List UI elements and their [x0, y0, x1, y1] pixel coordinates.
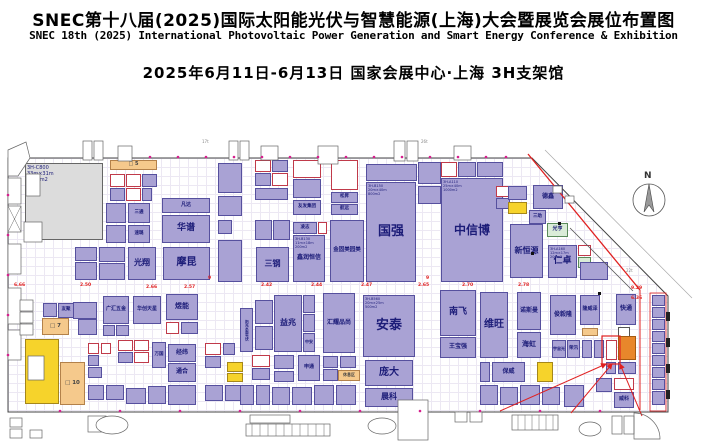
booth — [652, 319, 665, 330]
booth — [225, 385, 241, 401]
booth — [255, 188, 288, 200]
booth — [25, 339, 59, 404]
booth-华创天星: 华创天星 — [133, 296, 161, 324]
booth-name-label: 经纬 — [176, 350, 188, 356]
booth — [480, 385, 498, 405]
booth-name-label: 广汇五金 — [106, 307, 126, 312]
booth-name-label: 煜能 — [175, 303, 189, 310]
booth — [580, 262, 608, 280]
booth-name-label: 益兆 — [280, 319, 296, 327]
booth — [274, 371, 294, 382]
booth-name-label: □ 7 — [50, 324, 61, 330]
booth-华谱: 华谱 — [162, 215, 210, 243]
booth — [252, 355, 270, 367]
booth — [331, 160, 358, 190]
booth-三通: 三通 — [128, 203, 150, 223]
booth-area-label: 3H-A160 12m×17m 200m2 — [550, 247, 569, 260]
booth — [99, 263, 125, 280]
booth — [293, 179, 321, 198]
booth-name-label: 快通 — [620, 306, 632, 312]
booth-晨科: 晨科 — [365, 388, 413, 407]
booth-name-label: 国强 — [378, 225, 404, 239]
booth — [652, 343, 665, 354]
booth-阳光水面光伏: 阳光水面光伏 — [240, 308, 253, 352]
booth — [582, 328, 598, 336]
booth — [205, 385, 223, 401]
booth-area-label: 3H-C800 33m×31m 1023m2 — [27, 165, 54, 183]
booth — [43, 303, 57, 317]
booth — [142, 188, 152, 201]
booth-name-label: 速璐 — [135, 232, 144, 237]
booth — [582, 340, 592, 358]
booth-name-label: 中安 — [305, 340, 313, 344]
booth — [255, 160, 271, 172]
booth — [477, 162, 503, 177]
booth-name-label: 中信博 — [454, 224, 490, 237]
booth-name-label: 航远 — [340, 207, 349, 212]
booth-□ 10: □ 10 — [60, 362, 85, 405]
booth — [272, 160, 288, 172]
dimension-label: 6.66 — [14, 283, 25, 288]
booth-□ 7: □ 7 — [42, 318, 69, 335]
booth-国强: 3H-B150 20m×40m 800m2国强 — [366, 182, 416, 282]
booth-name-label: 汇耀品尚 — [327, 320, 351, 326]
booth-凡达: 凡达 — [162, 198, 210, 213]
dimension-label: 2.44 — [311, 283, 322, 288]
booth-area-label: 3H-B130 11m×18m 200m2 — [295, 237, 314, 250]
booth-area-label: 3H-B560 20m×25m 500m2 — [365, 297, 384, 310]
booth — [618, 362, 636, 374]
booth-维旺: 维旺 — [480, 292, 508, 358]
booth-仁卓: 3H-A160 12m×17m 200m2仁卓 — [548, 245, 577, 278]
booth-万国: 万国 — [152, 342, 166, 368]
booth-area-label: 3H-A110 25m×40m 1000m2 — [443, 180, 462, 193]
booth-name-label: 三钢 — [265, 260, 281, 268]
booth-中信博: 3H-A110 25m×40m 1000m2中信博 — [441, 178, 503, 282]
booth — [256, 385, 270, 405]
booth-王宝强: 王宝强 — [440, 337, 476, 358]
booth — [110, 174, 125, 187]
booth-name-label: 鑫润恒信 — [297, 255, 321, 261]
booth-鑫润恒信: 3H-B130 11m×18m 200m2鑫润恒信 — [293, 235, 325, 282]
booth-name-label: 南飞 — [449, 308, 467, 317]
booth — [73, 302, 97, 319]
booth — [537, 362, 553, 382]
booth-name-label: 光翔 — [134, 259, 150, 267]
booth — [101, 343, 111, 354]
booth-三助: 三助 — [529, 210, 546, 224]
booth-友聚: 友聚 — [58, 303, 74, 318]
booth — [255, 326, 273, 350]
booth-中安: 中安 — [303, 333, 315, 352]
booth — [227, 362, 243, 372]
booth-name-label: 凡达 — [181, 203, 191, 208]
booth — [578, 245, 591, 256]
booth — [274, 355, 294, 369]
booth-诺斯曼: 诺斯曼 — [517, 292, 541, 330]
booth — [606, 362, 616, 374]
booth-煜能: 煜能 — [166, 294, 198, 320]
booth-name-label: 申通 — [304, 365, 314, 370]
booth-经纬: 经纬 — [168, 344, 196, 362]
booth-休息区: 休息区 — [338, 370, 360, 381]
booth — [303, 314, 315, 332]
booth-name-label: 三通 — [135, 211, 144, 216]
booth-荣汛: 荣汛 — [567, 340, 580, 358]
booth-name-label: 安泰 — [376, 319, 402, 333]
booth-申通: 申通 — [298, 355, 320, 381]
booth-name-label: 友聚 — [62, 308, 71, 313]
booth — [596, 378, 612, 392]
booth-name-label: 凌志 — [301, 226, 310, 231]
booth-德鑫: 德鑫 — [533, 185, 563, 209]
booth-摩昆: 摩昆 — [163, 247, 210, 280]
booth-name-label: 德鑫 — [542, 194, 554, 200]
booth — [542, 387, 560, 405]
booth-通合: 通合 — [168, 363, 196, 382]
booth — [218, 240, 242, 282]
dimension-label: 2.78 — [518, 283, 529, 288]
dimension-label: 2.47 — [361, 283, 372, 288]
booth-name-label: 阳光水面光伏 — [245, 320, 249, 341]
booth — [323, 356, 338, 368]
booth — [520, 385, 540, 405]
booth — [336, 385, 356, 405]
booth — [652, 307, 665, 318]
booth-name-label: 宇宙光 — [553, 347, 565, 351]
booth — [255, 300, 273, 324]
dimension-label: 9.29 — [631, 286, 642, 291]
dimension-label: 6.36 — [631, 296, 642, 301]
booth — [134, 352, 149, 363]
booth-name-label: 庞大 — [379, 368, 399, 379]
booth-name-label: 俊毅隆 — [554, 312, 572, 318]
booth-金固美园美: 金固美园美 — [330, 220, 364, 282]
booth-宇宙光: 宇宙光 — [552, 340, 566, 358]
booth-新恒源: 新恒源 — [510, 224, 543, 278]
booth — [652, 355, 665, 366]
booth — [273, 220, 290, 240]
booth-松昇: 松昇 — [331, 192, 358, 203]
booth-name-label: 新恒源 — [515, 247, 539, 255]
booth — [614, 378, 634, 390]
booth — [508, 202, 527, 214]
booth-name-label: 诺斯曼 — [520, 308, 538, 314]
booth — [252, 368, 270, 380]
booth-南飞: 南飞 — [440, 290, 476, 336]
booth-□ 5: □ 5 — [110, 160, 157, 170]
booth — [218, 220, 232, 234]
booth — [292, 387, 312, 405]
booth — [652, 331, 665, 342]
booth — [166, 322, 179, 334]
dimension-label: 2.65 — [418, 283, 429, 288]
booth — [205, 343, 221, 355]
booth-name-label: 晨科 — [381, 393, 397, 401]
booth-庞大: 庞大 — [365, 360, 413, 386]
booth — [340, 356, 356, 368]
booth — [323, 369, 338, 381]
booth-name-label: □ 5 — [129, 162, 139, 167]
booth: 3H-C800 33m×31m 1023m2 — [25, 163, 103, 240]
booth-俊毅隆: 俊毅隆 — [550, 295, 576, 335]
booth — [126, 388, 146, 404]
booth — [272, 173, 288, 186]
booth — [75, 262, 97, 280]
booth-name-label: 通合 — [176, 369, 188, 375]
dimension-label: 26t — [421, 139, 428, 144]
booth — [218, 196, 242, 216]
booth — [293, 160, 321, 178]
booth-广汇五金: 广汇五金 — [103, 296, 129, 324]
booth — [118, 340, 133, 351]
booth-name-label: 维旺 — [484, 320, 504, 331]
booth — [418, 162, 441, 184]
booth — [314, 385, 334, 405]
dimension-label: 2.57 — [184, 285, 195, 290]
booth-name-label: 保威 — [502, 369, 514, 375]
booth — [116, 325, 129, 336]
booth — [106, 203, 126, 223]
booth — [126, 174, 141, 187]
booth-name-label: 休息区 — [343, 373, 355, 377]
booth — [272, 387, 290, 405]
booth — [110, 188, 125, 201]
booth — [500, 387, 518, 405]
booth — [181, 322, 198, 334]
booth — [240, 385, 254, 405]
booth — [480, 362, 490, 382]
booth-海虹: 海虹 — [517, 332, 541, 358]
dimension-label: 2.66 — [146, 285, 157, 290]
booth-光翔: 光翔 — [128, 247, 156, 280]
booth — [88, 355, 99, 366]
booth — [458, 162, 476, 177]
booth — [303, 295, 315, 313]
booth — [606, 340, 617, 360]
booth — [88, 385, 104, 400]
booth-name-label: 隆威泽 — [582, 307, 597, 312]
booth-name-label: 摩昆 — [177, 258, 197, 269]
booth-三钢: 三钢 — [256, 247, 289, 282]
booth-name-label: 松昇 — [340, 195, 349, 200]
dimension-label: 2.42 — [261, 283, 272, 288]
booth — [223, 343, 235, 355]
booth-速璐: 速璐 — [128, 225, 150, 243]
booth — [255, 173, 271, 186]
booth — [652, 295, 665, 306]
booth — [594, 340, 604, 358]
dimension-label: 2.50 — [80, 283, 91, 288]
booth-益兆: 益兆 — [274, 295, 302, 352]
dimension-label: 9 — [208, 276, 211, 281]
booth-name-label: 威科 — [619, 397, 629, 402]
dimension-label: 17t — [202, 139, 209, 144]
booth-name-label: 华谱 — [177, 224, 195, 233]
booth — [134, 340, 149, 351]
booth — [366, 164, 417, 181]
booth-name-label: 友发集团 — [298, 205, 316, 210]
booth-name-label: 三助 — [533, 215, 542, 220]
dimension-label: 2.70 — [462, 283, 473, 288]
booth — [441, 162, 457, 177]
booth-name-label: 华创天星 — [137, 307, 157, 312]
booth — [118, 352, 133, 363]
booth — [618, 336, 636, 360]
booth-安泰: 3H-B560 20m×25m 500m2安泰 — [363, 295, 415, 357]
booth — [652, 379, 665, 390]
booth — [75, 247, 97, 261]
booth-name-label: 光亨 — [552, 227, 562, 232]
booth — [106, 385, 124, 400]
booth — [227, 373, 243, 382]
dimension-label: 22t — [626, 268, 633, 273]
booth — [88, 367, 102, 378]
booth — [168, 385, 196, 405]
dimension-label: 9 — [426, 276, 429, 281]
booth — [205, 356, 221, 368]
booth-光亨: 光亨 — [547, 223, 568, 237]
booth — [318, 222, 327, 234]
booth — [103, 325, 115, 336]
booth — [652, 367, 665, 378]
booth-威科: 威科 — [614, 392, 634, 408]
booth — [564, 385, 584, 407]
booth-航远: 航远 — [331, 204, 358, 215]
booth-汇耀品尚: 汇耀品尚 — [323, 293, 355, 353]
booth — [652, 391, 665, 405]
booth-name-label: 王宝强 — [449, 344, 467, 350]
booth — [418, 186, 441, 204]
booth — [218, 163, 242, 193]
booth — [126, 188, 141, 201]
booth — [142, 174, 157, 187]
booth — [255, 220, 272, 240]
booth-name-label: □ 10 — [65, 381, 80, 387]
booth-name-label: 海虹 — [522, 341, 536, 348]
booth — [88, 343, 99, 354]
booth — [508, 186, 527, 200]
booth — [78, 319, 97, 335]
booth-name-label: 万国 — [155, 353, 164, 358]
booth-隆威泽: 隆威泽 — [580, 295, 600, 325]
booth — [106, 225, 126, 243]
booth-area-label: 3H-B150 20m×40m 800m2 — [368, 184, 387, 197]
booth — [99, 247, 125, 262]
booth-name-label: 荣汛 — [569, 347, 578, 352]
booth-保威: 保威 — [492, 362, 525, 382]
booth-友发集团: 友发集团 — [293, 200, 321, 215]
booth — [148, 386, 166, 404]
floor-plan: 3H-C800 33m×31m 1023m2□ 5三通速璐凡达华谱光翔摩昆友发集… — [0, 0, 707, 441]
booth-凌志: 凌志 — [293, 222, 317, 234]
booth-name-label: 金固美园美 — [333, 248, 361, 254]
